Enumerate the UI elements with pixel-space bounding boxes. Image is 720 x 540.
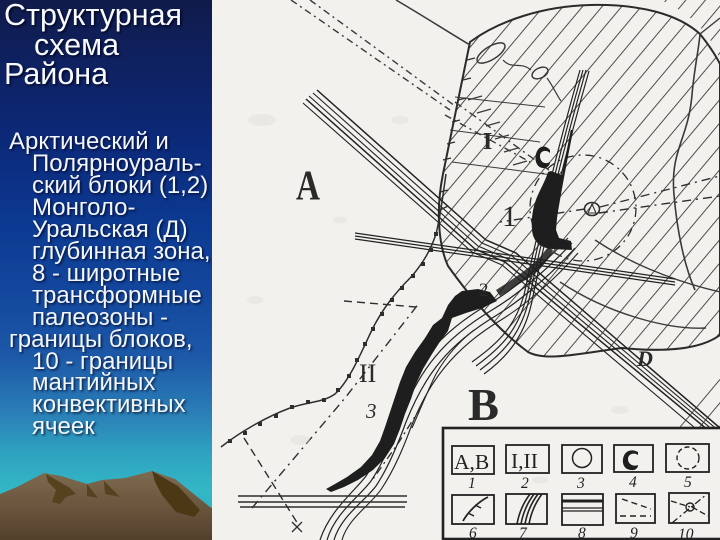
svg-text:4: 4 — [629, 474, 637, 491]
svg-text:6: 6 — [469, 525, 477, 540]
svg-text:А: А — [296, 164, 321, 210]
svg-text:8: 8 — [578, 525, 586, 540]
svg-text:А,В: А,В — [454, 450, 489, 474]
svg-text:1: 1 — [502, 200, 517, 233]
svg-text:1: 1 — [468, 475, 476, 492]
svg-text:3: 3 — [576, 475, 585, 492]
svg-text:В: В — [468, 380, 499, 430]
svg-text:10: 10 — [678, 526, 694, 540]
svg-text:2: 2 — [521, 475, 529, 492]
svg-text:D: D — [636, 346, 653, 371]
svg-text:I: I — [483, 129, 492, 155]
svg-text:3: 3 — [365, 399, 377, 423]
svg-text:II: II — [359, 359, 376, 388]
svg-text:7: 7 — [519, 525, 528, 540]
svg-text:5: 5 — [684, 474, 692, 491]
svg-text:2: 2 — [479, 280, 489, 301]
svg-text:I,II: I,II — [511, 449, 538, 473]
svg-text:9: 9 — [630, 525, 638, 540]
